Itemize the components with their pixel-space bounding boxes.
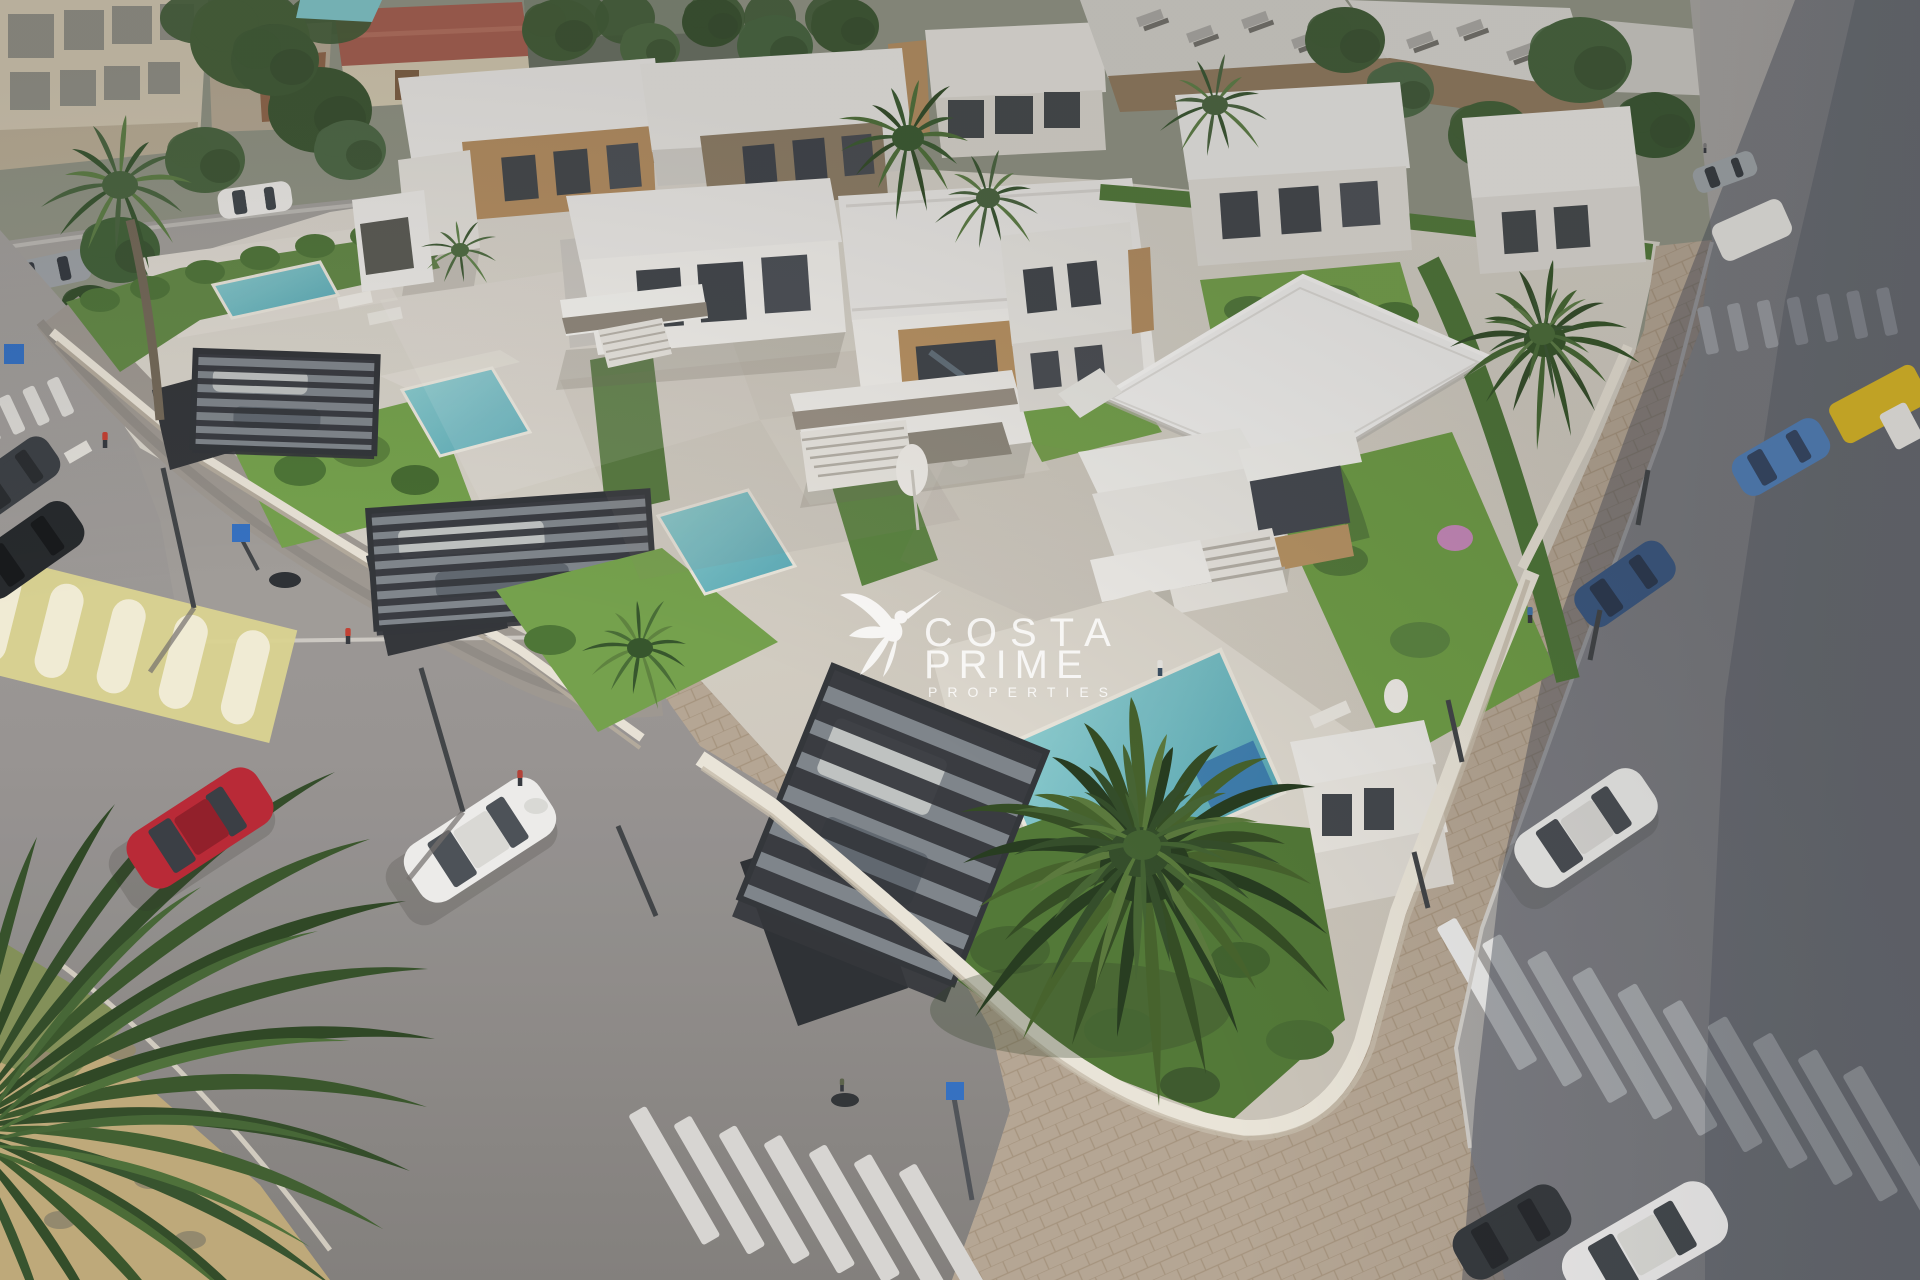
svg-text:PROPERTIES: PROPERTIES — [928, 684, 1118, 700]
svg-text:PRIME: PRIME — [924, 643, 1091, 687]
